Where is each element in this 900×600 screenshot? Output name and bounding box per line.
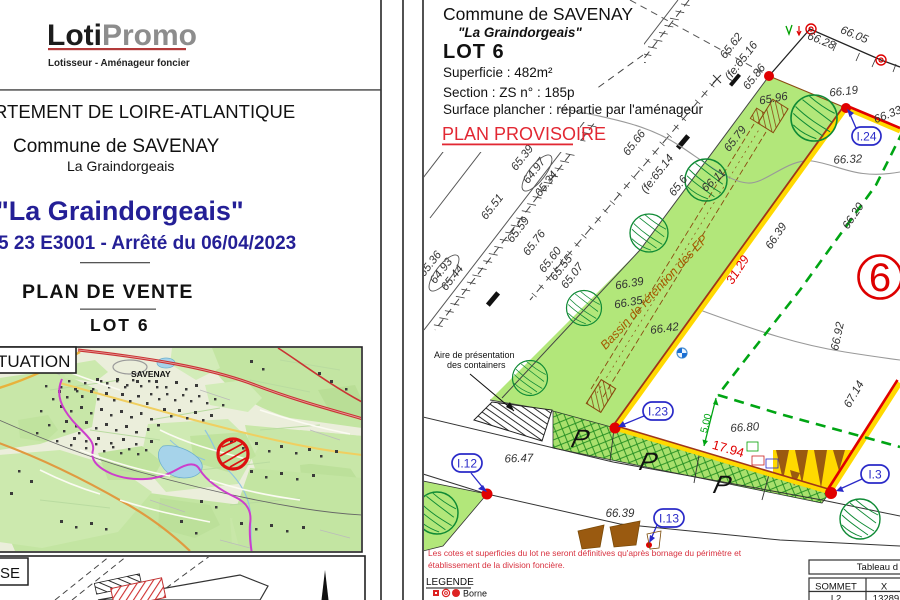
svg-text:SE: SE xyxy=(0,565,20,582)
svg-text:RTEMENT DE LOIRE-ATLANTIQUE: RTEMENT DE LOIRE-ATLANTIQUE xyxy=(0,101,295,122)
svg-text:13289: 13289 xyxy=(873,594,899,600)
svg-text:I.2: I.2 xyxy=(831,594,842,600)
svg-text:SOMMET: SOMMET xyxy=(815,582,857,593)
svg-text:66.47: 66.47 xyxy=(504,452,534,465)
svg-text:66.32: 66.32 xyxy=(833,153,863,167)
svg-text:Surface plancher : répartie pa: Surface plancher : répartie par l'aménag… xyxy=(443,102,703,117)
svg-text:LEGENDE: LEGENDE xyxy=(426,577,474,588)
svg-text:des containers: des containers xyxy=(447,360,506,370)
svg-text:Superficie : 482m²: Superficie : 482m² xyxy=(443,65,553,80)
svg-text:X: X xyxy=(881,582,888,593)
svg-text:6: 6 xyxy=(869,256,891,300)
svg-text:"La Graindorgeais": "La Graindorgeais" xyxy=(458,25,582,40)
svg-text:"La Graindorgeais": "La Graindorgeais" xyxy=(0,196,244,226)
svg-text:LOT 6: LOT 6 xyxy=(90,315,150,335)
svg-text:LotiPromo: LotiPromo xyxy=(47,19,197,52)
svg-text:Commune de SAVENAY: Commune de SAVENAY xyxy=(443,4,633,24)
svg-text:I.24: I.24 xyxy=(856,130,876,144)
svg-text:Borne: Borne xyxy=(463,589,487,599)
svg-text:Aire de présentation: Aire de présentation xyxy=(434,350,515,360)
svg-text:établissement de la division f: établissement de la division foncière. xyxy=(428,560,565,570)
svg-text:I.12: I.12 xyxy=(457,457,477,471)
svg-text:TUATION: TUATION xyxy=(0,352,70,371)
svg-text:5 23 E3001 - Arrêté du 06/04/2: 5 23 E3001 - Arrêté du 06/04/2023 xyxy=(0,233,296,254)
svg-text:Tableau d: Tableau d xyxy=(857,562,898,573)
svg-text:LOT 6: LOT 6 xyxy=(443,41,505,63)
svg-text:Lotisseur - Aménageur foncier: Lotisseur - Aménageur foncier xyxy=(48,58,190,69)
svg-text:I.23: I.23 xyxy=(648,405,668,419)
svg-text:PLAN PROVISOIRE: PLAN PROVISOIRE xyxy=(442,124,606,144)
svg-text:I.13: I.13 xyxy=(659,512,679,526)
svg-text:I.3: I.3 xyxy=(868,468,882,482)
svg-text:Commune de SAVENAY: Commune de SAVENAY xyxy=(13,136,220,157)
svg-text:66.39: 66.39 xyxy=(606,508,635,520)
svg-text:PLAN DE VENTE: PLAN DE VENTE xyxy=(22,281,194,303)
svg-text:La Graindorgeais: La Graindorgeais xyxy=(67,158,174,174)
svg-text:Les cotes et superficies du lo: Les cotes et superficies du lot ne seron… xyxy=(428,548,742,558)
svg-text:66.80: 66.80 xyxy=(730,421,760,435)
svg-text:Section : ZS n° : 1: Section : ZS n° : 185p xyxy=(443,85,574,100)
svg-text:SAVENAY: SAVENAY xyxy=(131,369,171,379)
